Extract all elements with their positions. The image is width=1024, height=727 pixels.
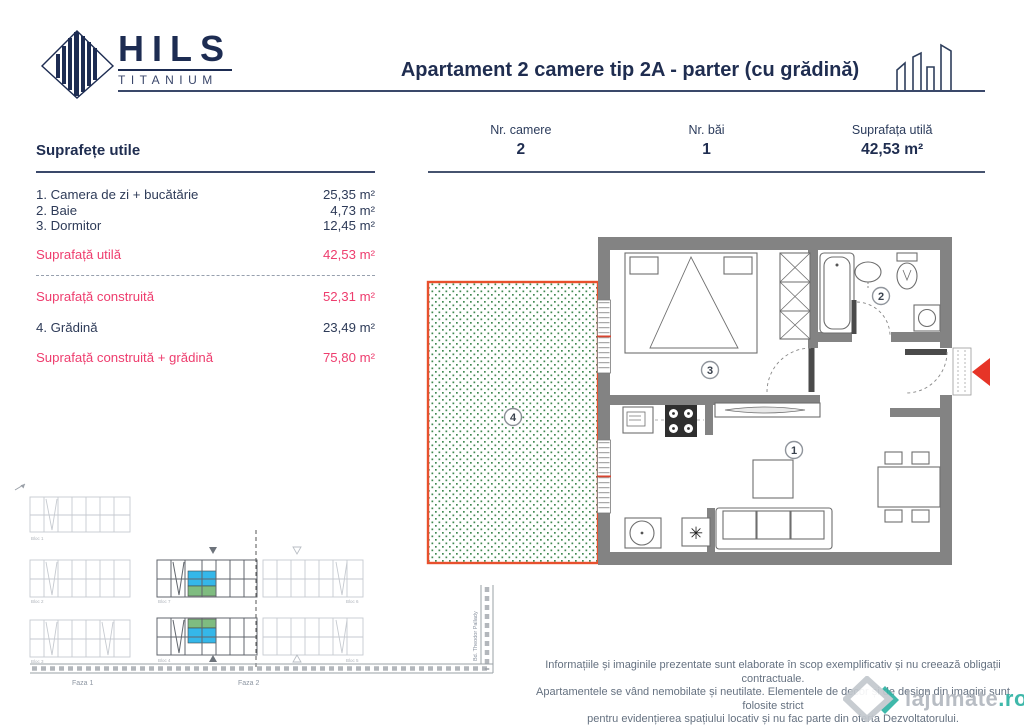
room-number: 2 (878, 291, 884, 303)
dishwasher: ✳ (682, 518, 710, 546)
page-title: Apartament 2 camere tip 2A - parter (cu … (370, 59, 890, 82)
stat-label: Nr. băi (614, 123, 800, 137)
area-label: Suprafață construită + grădină (36, 350, 213, 366)
siteplan-block-2 (30, 560, 130, 597)
bathtub (820, 253, 854, 333)
skyline-icon (893, 40, 963, 90)
watermark-text: lajumate.ro (905, 686, 1024, 712)
siteplan-block-1 (30, 497, 130, 532)
bathroom-door (852, 300, 891, 335)
dining-table (878, 452, 940, 522)
wardrobe (780, 253, 810, 339)
area-value: 42,53 m² (323, 247, 375, 263)
room-label-living: 1 (786, 442, 803, 459)
sofa (716, 508, 832, 549)
room-number: 4 (510, 412, 517, 424)
block-label-4: Bloc 4 (158, 658, 171, 663)
stat-baths: Nr. băi 1 (614, 123, 800, 159)
areas-heading: Suprafețe utile (36, 142, 375, 159)
phase-label-2: Faza 2 (238, 680, 260, 687)
block-label-6: Bloc 6 (346, 599, 359, 604)
stats-divider (428, 171, 985, 173)
stat-label: Suprafața utilă (799, 123, 985, 137)
siteplan-block-5 (263, 618, 363, 655)
area-label: Suprafață construită (36, 289, 154, 305)
room-label-garden: 4 (505, 409, 522, 426)
areas-panel: Suprafețe utile 1. Camera de zi + bucătă… (36, 142, 375, 366)
area-garden: 4. Grădină 23,49 m² (36, 320, 375, 336)
area-total-useful: Suprafață utilă 42,53 m² (36, 247, 375, 263)
area-row-bath: 2. Baie 4,73 m² (36, 203, 375, 219)
coffee-table (753, 460, 793, 498)
entrance-markers (209, 547, 301, 662)
stat-rooms: Nr. camere 2 (428, 123, 614, 159)
logo-divider (118, 69, 232, 71)
brand-subtitle: TITANIUM (118, 73, 236, 87)
watermark-brand: lajumate (905, 686, 998, 711)
road-horizontal (30, 664, 493, 673)
room-number: 1 (791, 445, 797, 457)
dishwasher-symbol: ✳ (689, 524, 703, 543)
block-label-2: Bloc 2 (31, 599, 44, 604)
window-bedroom (597, 300, 611, 373)
areas-dashed-divider (36, 275, 375, 276)
watermark-tld: .ro (998, 686, 1024, 711)
site-plan: Bd. Theodor Pallady Bloc 1 Bloc 2 Bloc 3… (10, 472, 510, 697)
siteplan-block-6 (263, 560, 363, 597)
lajumate-watermark: lajumate.ro (843, 676, 1024, 722)
areas-list: 1. Camera de zi + bucătărie 25,35 m² 2. … (36, 187, 375, 234)
stat-usable-area: Suprafața utilă 42,53 m² (799, 123, 985, 159)
header-divider (118, 90, 985, 92)
stats-row: Nr. camere 2 Nr. băi 1 Suprafața utilă 4… (428, 123, 985, 159)
area-built: Suprafață construită 52,31 m² (36, 289, 375, 305)
brand-name: HILS (118, 30, 236, 68)
area-row-living: 1. Camera de zi + bucătărie 25,35 m² (36, 187, 375, 203)
room-label-bathroom: 2 (873, 288, 890, 305)
area-row-bedroom: 3. Dormitor 12,45 m² (36, 218, 375, 234)
stat-value: 2 (428, 141, 614, 159)
block-label-3: Bloc 3 (31, 659, 44, 664)
areas-divider (36, 171, 375, 173)
area-label: 2. Baie (36, 203, 77, 219)
area-label: Suprafață utilă (36, 247, 121, 263)
area-value: 25,35 m² (323, 187, 375, 203)
lajumate-logo-icon (843, 676, 899, 722)
room-number: 3 (707, 365, 713, 377)
entrance-door (905, 348, 971, 395)
area-built-plus-garden: Suprafață construită + grădină 75,80 m² (36, 350, 375, 366)
area-label: 3. Dormitor (36, 218, 101, 234)
hils-logo-icon (40, 28, 115, 100)
bedroom-door (767, 348, 815, 392)
area-label: 1. Camera de zi + bucătărie (36, 187, 198, 203)
bathroom-sink (855, 262, 881, 288)
toilet (897, 253, 917, 289)
bed (625, 253, 757, 353)
road-vertical (481, 585, 493, 673)
kitchen-shelf (715, 403, 820, 417)
phase-label-1: Faza 1 (72, 680, 94, 687)
siteplan-block-3 (30, 620, 130, 657)
stat-label: Nr. camere (428, 123, 614, 137)
block-label-5: Bloc 5 (346, 658, 359, 663)
block-label-1: Bloc 1 (31, 536, 44, 541)
north-arrow-icon (15, 484, 25, 490)
window-living (597, 440, 611, 513)
area-value: 75,80 m² (323, 350, 375, 366)
area-value: 12,45 m² (323, 218, 375, 234)
area-value: 4,73 m² (330, 203, 375, 219)
room-label-bedroom: 3 (702, 362, 719, 379)
street-label: Bd. Theodor Pallady (473, 611, 479, 661)
area-value: 23,49 m² (323, 320, 375, 336)
block-label-7: Bloc 7 (158, 599, 171, 604)
area-label: 4. Grădină (36, 320, 98, 336)
washing-machine (914, 305, 940, 331)
hils-logo: HILS TITANIUM (118, 30, 236, 87)
entrance-arrow-icon (972, 358, 990, 386)
area-value: 52,31 m² (323, 289, 375, 305)
stat-value: 42,53 m² (799, 141, 985, 159)
kitchen-sink (625, 518, 661, 548)
stove (665, 405, 697, 437)
stat-value: 1 (614, 141, 800, 159)
